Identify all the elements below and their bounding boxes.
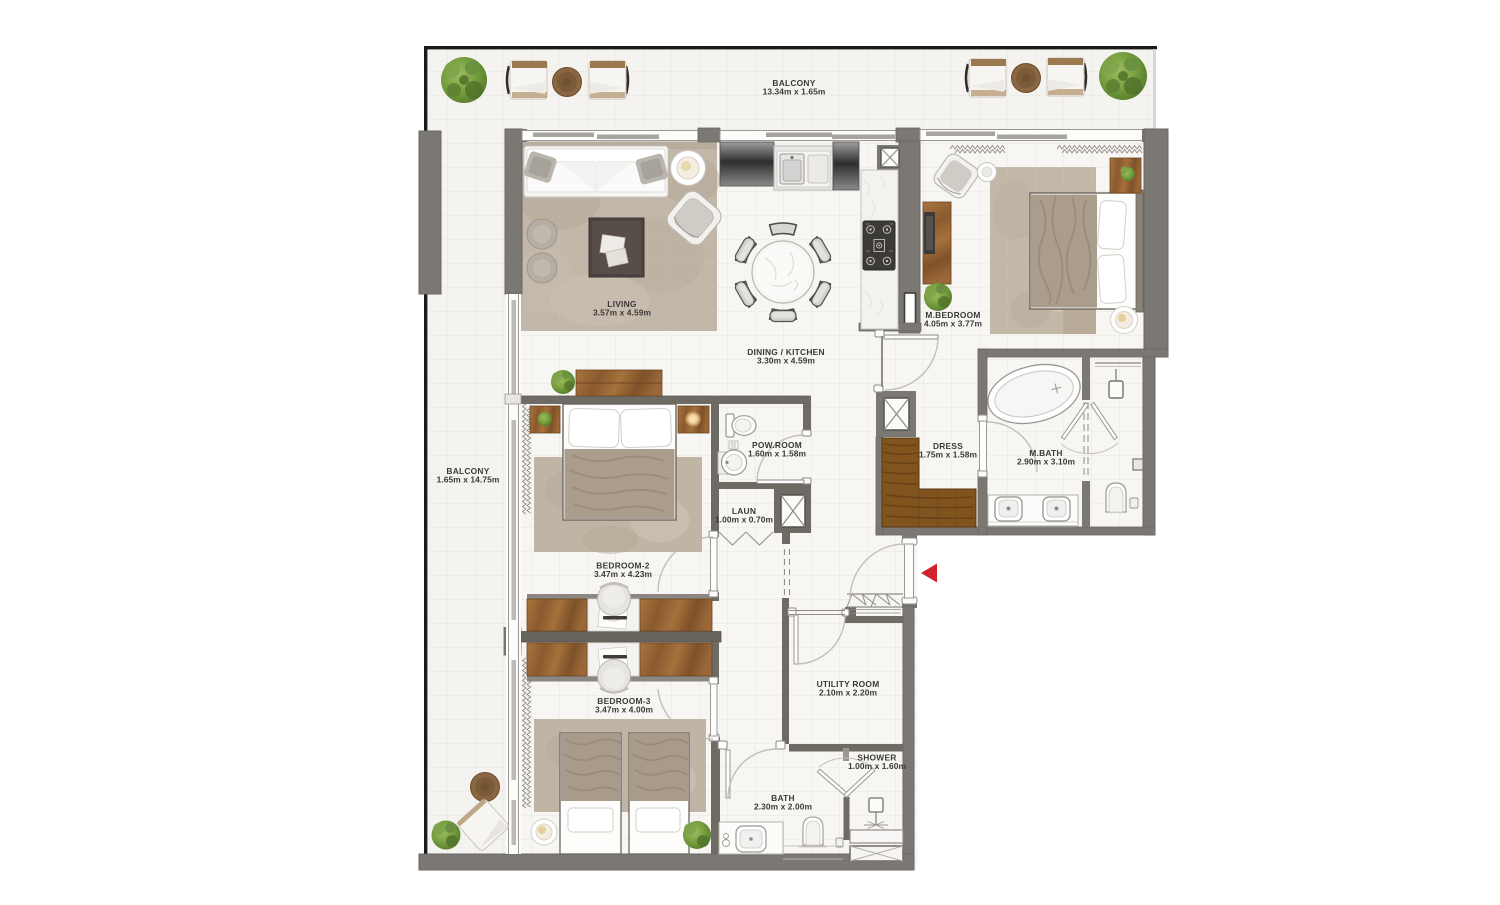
svg-text:3.30m x 4.59m: 3.30m x 4.59m (757, 356, 815, 366)
svg-text:1.00m x 1.60m: 1.00m x 1.60m (848, 761, 906, 771)
svg-text:1.60m x 1.58m: 1.60m x 1.58m (748, 449, 806, 459)
svg-text:2.90m x 3.10m: 2.90m x 3.10m (1017, 457, 1075, 467)
svg-text:13.34m x 1.65m: 13.34m x 1.65m (763, 87, 826, 97)
svg-text:3.47m x 4.23m: 3.47m x 4.23m (594, 569, 652, 579)
svg-text:3.47m x 4.00m: 3.47m x 4.00m (595, 705, 653, 715)
svg-text:4.05m x 3.77m: 4.05m x 3.77m (924, 319, 982, 329)
svg-text:3.57m x 4.59m: 3.57m x 4.59m (593, 308, 651, 318)
svg-text:1.65m x 14.75m: 1.65m x 14.75m (437, 475, 500, 485)
svg-text:2.10m x 2.20m: 2.10m x 2.20m (819, 688, 877, 698)
svg-text:2.30m x 2.00m: 2.30m x 2.00m (754, 802, 812, 812)
svg-text:1.75m x 1.58m: 1.75m x 1.58m (919, 450, 977, 460)
svg-text:1.00m x 0.70m: 1.00m x 0.70m (715, 515, 773, 525)
